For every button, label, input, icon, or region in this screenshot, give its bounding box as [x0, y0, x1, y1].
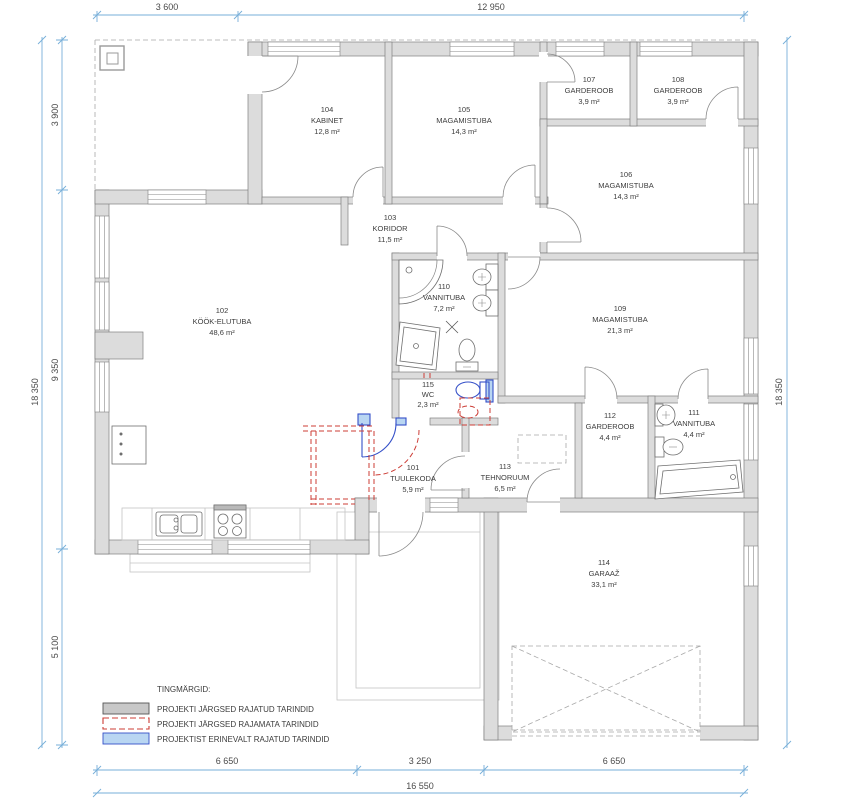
dimension-right-total: 18 350 [774, 36, 791, 749]
room-label-106: 106MAGAMISTUBA14,3 m² [598, 170, 653, 201]
garage-door [512, 646, 700, 736]
svg-text:6 650: 6 650 [216, 756, 239, 766]
roof-overhang-outline [95, 40, 758, 192]
kitchen-cabinet [112, 426, 146, 464]
dimension-top: 3 600 12 950 [93, 2, 748, 22]
svg-text:11,5 m²: 11,5 m² [378, 235, 403, 244]
room-label-107: 107GARDEROOB3,9 m² [565, 75, 614, 106]
svg-text:6,5 m²: 6,5 m² [494, 484, 516, 493]
fireplace-block [95, 332, 143, 359]
dimension-left-segments: 3 900 9 350 5 100 [50, 36, 68, 749]
floor-drain-mark [446, 321, 458, 333]
legend-swatch-modified [103, 733, 149, 744]
svg-text:4,4 m²: 4,4 m² [599, 433, 621, 442]
svg-text:GARDEROOB: GARDEROOB [654, 86, 703, 95]
svg-text:5,9 m²: 5,9 m² [402, 485, 424, 494]
legend-label-unbuilt: PROJEKTI JÄRGSED RAJAMATA TARINDID [157, 720, 319, 729]
modified-door [362, 423, 396, 457]
room-label-103: 103KORIDOR11,5 m² [372, 213, 408, 244]
kitchen-sink [156, 512, 202, 536]
svg-text:3 250: 3 250 [409, 756, 432, 766]
svg-text:14,3 m²: 14,3 m² [613, 192, 639, 201]
svg-text:12,8 m²: 12,8 m² [314, 127, 340, 136]
room-label-105: 105MAGAMISTUBA14,3 m² [436, 105, 491, 136]
bathtub-110 [396, 322, 440, 370]
svg-text:18 350: 18 350 [774, 378, 784, 406]
room-label-102: 102KÖÖK-ELUTUBA48,6 m² [193, 306, 252, 337]
svg-text:6 650: 6 650 [603, 756, 626, 766]
svg-text:MAGAMISTUBA: MAGAMISTUBA [598, 181, 653, 190]
svg-text:48,6 m²: 48,6 m² [209, 328, 235, 337]
svg-text:9 350: 9 350 [50, 359, 60, 382]
front-door [379, 512, 423, 556]
svg-text:113: 113 [499, 462, 511, 471]
room-label-111: 111VANNITUBA4,4 m² [673, 408, 715, 439]
svg-text:TEHNORUUM: TEHNORUUM [481, 473, 530, 482]
svg-text:16 550: 16 550 [406, 781, 434, 791]
dimension-bottom-total: 16 550 [93, 781, 748, 797]
svg-text:GARAAŽ: GARAAŽ [589, 569, 620, 578]
svg-text:5 100: 5 100 [50, 636, 60, 659]
svg-text:112: 112 [604, 411, 616, 420]
svg-text:3,9 m²: 3,9 m² [667, 97, 689, 106]
toilet-111 [655, 437, 683, 457]
svg-text:109: 109 [614, 304, 627, 313]
svg-text:103: 103 [384, 213, 397, 222]
svg-text:18 350: 18 350 [30, 378, 40, 406]
room-label-108: 108GARDEROOB3,9 m² [654, 75, 703, 106]
svg-text:12 950: 12 950 [477, 2, 505, 12]
svg-text:TUULEKODA: TUULEKODA [390, 474, 436, 483]
svg-text:2,3 m²: 2,3 m² [417, 400, 439, 409]
room-label-112: 112GARDEROOB4,4 m² [586, 411, 635, 442]
dimension-bottom-segments: 6 650 3 250 6 650 [93, 756, 748, 776]
room-label-109: 109MAGAMISTUBA21,3 m² [592, 304, 647, 335]
floor-plan-canvas: 101TUULEKODA5,9 m² 102KÖÖK-ELUTUBA48,6 m… [0, 0, 845, 800]
legend-swatch-built [103, 703, 149, 714]
svg-text:114: 114 [598, 558, 610, 567]
svg-text:7,2 m²: 7,2 m² [433, 304, 455, 313]
svg-text:MAGAMISTUBA: MAGAMISTUBA [592, 315, 647, 324]
tehnoruum-fixtures [518, 435, 566, 463]
svg-text:WC: WC [422, 390, 435, 399]
svg-text:111: 111 [688, 408, 699, 417]
dimension-left-total: 18 350 [30, 36, 46, 749]
svg-text:KABINET: KABINET [311, 116, 344, 125]
svg-text:GARDEROOB: GARDEROOB [565, 86, 614, 95]
svg-text:104: 104 [321, 105, 334, 114]
room-label-114: 114GARAAŽ33,1 m² [589, 558, 620, 589]
svg-text:VANNITUBA: VANNITUBA [423, 293, 465, 302]
room-label-101: 101TUULEKODA5,9 m² [390, 463, 436, 494]
room-label-104: 104KABINET12,8 m² [311, 105, 344, 136]
stove [214, 505, 246, 538]
svg-text:110: 110 [438, 282, 450, 291]
svg-text:115: 115 [422, 380, 434, 389]
legend-label-built: PROJEKTI JÄRGSED RAJATUD TARINDID [157, 705, 314, 714]
svg-text:108: 108 [672, 75, 685, 84]
svg-text:101: 101 [407, 463, 420, 472]
legend-label-modified: PROJEKTIST ERINEVALT RAJATUD TARINDID [157, 735, 330, 744]
svg-text:3 600: 3 600 [156, 2, 179, 12]
svg-text:21,3 m²: 21,3 m² [607, 326, 633, 335]
legend: TINGMÄRGID: PROJEKTI JÄRGSED RAJATUD TAR… [103, 685, 330, 744]
svg-text:KÖÖK-ELUTUBA: KÖÖK-ELUTUBA [193, 317, 252, 326]
room-label-113: 113TEHNORUUM6,5 m² [481, 462, 530, 493]
svg-text:VANNITUBA: VANNITUBA [673, 419, 715, 428]
svg-text:3 900: 3 900 [50, 104, 60, 127]
svg-text:106: 106 [620, 170, 633, 179]
legend-swatch-unbuilt [103, 718, 149, 729]
svg-text:GARDEROOB: GARDEROOB [586, 422, 635, 431]
toilet-110 [456, 339, 478, 371]
svg-text:33,1 m²: 33,1 m² [591, 580, 617, 589]
legend-title: TINGMÄRGID: [157, 685, 210, 694]
bathroom-110-fixtures [396, 260, 498, 371]
svg-text:KORIDOR: KORIDOR [372, 224, 408, 233]
svg-text:MAGAMISTUBA: MAGAMISTUBA [436, 116, 491, 125]
sinks-110 [473, 264, 498, 316]
south-terrace-outline [130, 554, 310, 572]
room-label-115: 115WC2,3 m² [417, 380, 439, 409]
svg-text:3,9 m²: 3,9 m² [578, 97, 600, 106]
toilet-115-blue [456, 382, 489, 399]
svg-text:4,4 m²: 4,4 m² [683, 430, 705, 439]
kitchen-fixtures [112, 426, 345, 540]
svg-text:105: 105 [458, 105, 471, 114]
svg-text:102: 102 [216, 306, 229, 315]
bathtub-111 [655, 460, 743, 499]
floor-plan-page: 101TUULEKODA5,9 m² 102KÖÖK-ELUTUBA48,6 m… [0, 0, 845, 800]
svg-text:14,3 m²: 14,3 m² [451, 127, 477, 136]
svg-text:107: 107 [583, 75, 596, 84]
